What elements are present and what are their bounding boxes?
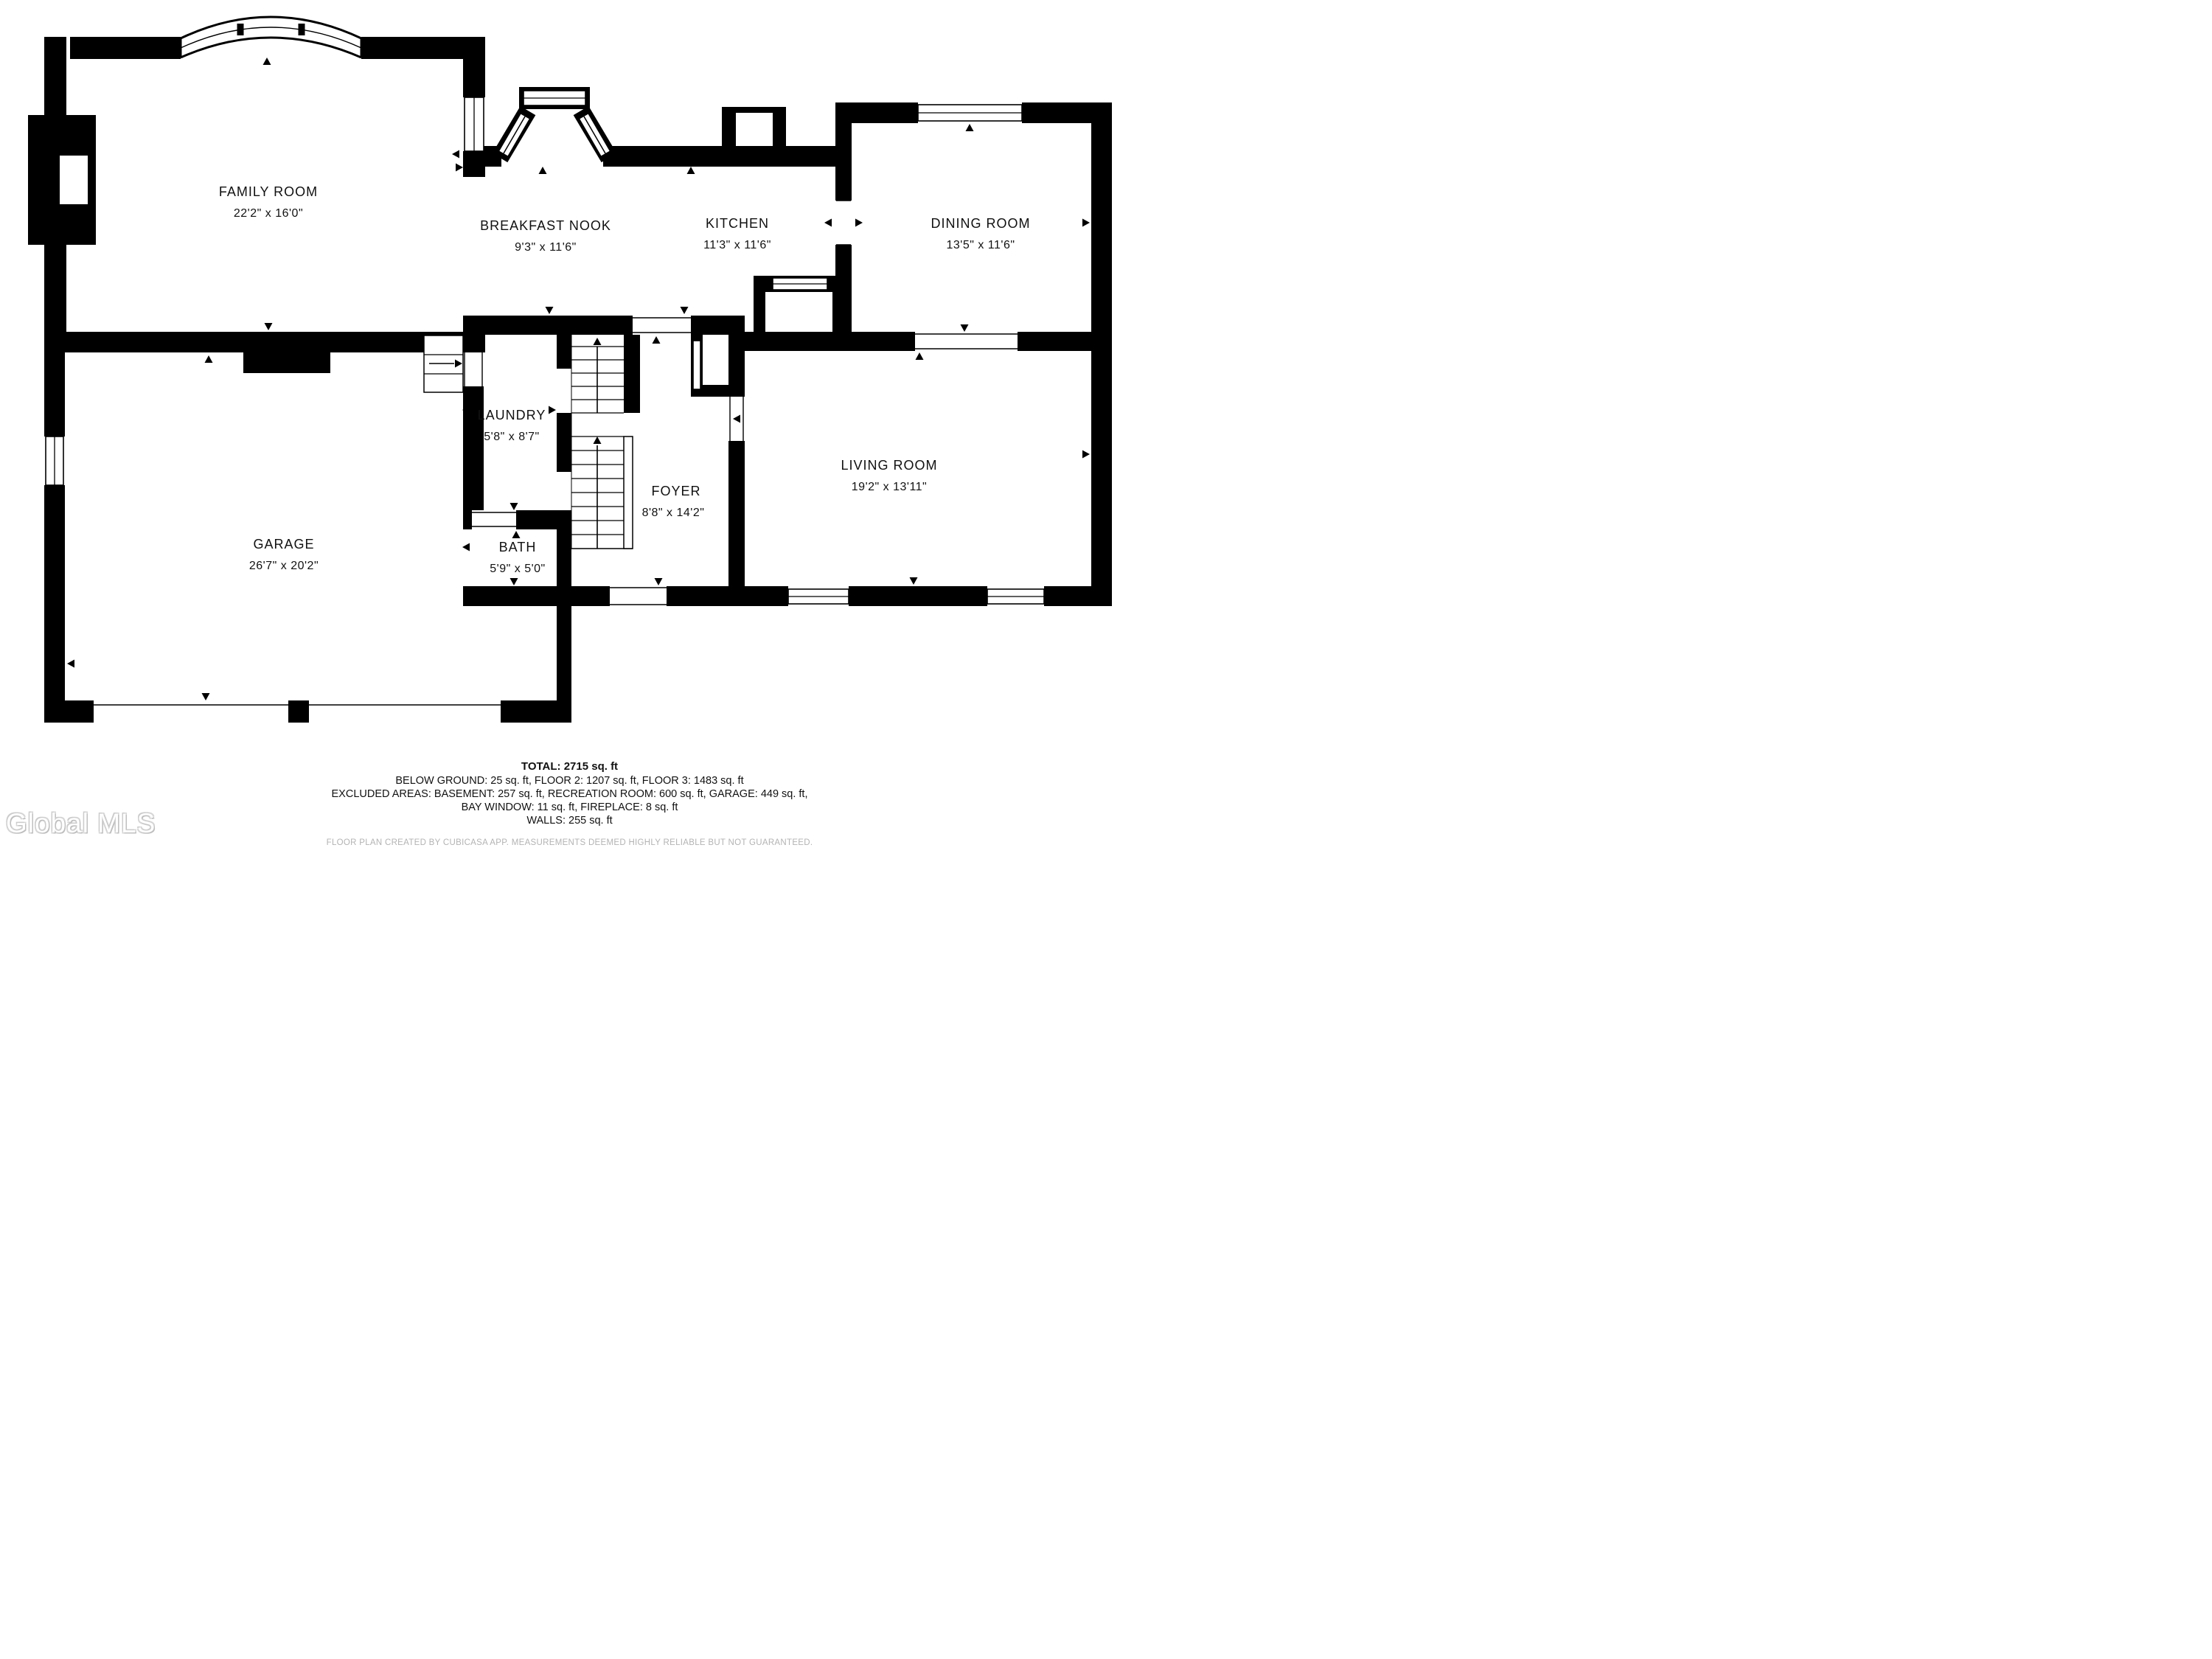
disclaimer-text: FLOOR PLAN CREATED BY CUBICASA APP. MEAS… <box>0 838 1139 847</box>
room-label-family-room: FAMILY ROOM <box>219 184 318 199</box>
total-area-text: TOTAL: 2715 sq. ft <box>0 760 1139 773</box>
room-label-kitchen: KITCHEN <box>706 216 769 231</box>
room-label-living-room: LIVING ROOM <box>841 458 937 473</box>
room-dims-foyer: 8'8" x 14'2" <box>642 507 705 519</box>
room-dims-laundry: 5'8" x 8'7" <box>484 431 539 443</box>
walls <box>28 37 1112 723</box>
room-label-bath: BATH <box>499 540 537 554</box>
room-label-dining-room: DINING ROOM <box>931 216 1031 231</box>
room-label-garage: GARAGE <box>253 537 314 552</box>
global-mls-watermark: Global MLS <box>6 808 156 839</box>
room-dims-dining-room: 13'5" x 11'6" <box>946 239 1015 251</box>
room-dims-family-room: 22'2" x 16'0" <box>234 207 303 220</box>
room-dims-bath: 5'9" x 5'0" <box>490 563 545 575</box>
room-dims-breakfast-nook: 9'3" x 11'6" <box>515 241 577 254</box>
room-dims-garage: 26'7" x 20'2" <box>249 560 319 572</box>
room-label-laundry: LAUNDRY <box>478 408 546 422</box>
excluded-areas-text: EXCLUDED AREAS: BASEMENT: 257 sq. ft, RE… <box>0 787 1139 801</box>
breakfast-nook-bay-window <box>500 111 609 158</box>
fireplace <box>35 122 88 237</box>
floors-area-text: BELOW GROUND: 25 sq. ft, FLOOR 2: 1207 s… <box>0 774 1139 787</box>
bay-fireplace-area-text: BAY WINDOW: 11 sq. ft, FIREPLACE: 8 sq. … <box>0 801 1139 814</box>
staircase <box>571 335 633 549</box>
bay-window-arch <box>181 17 361 58</box>
room-label-breakfast-nook: BREAKFAST NOOK <box>480 218 611 233</box>
walls-area-text: WALLS: 255 sq. ft <box>0 814 1139 827</box>
room-dims-living-room: 19'2" x 13'11" <box>852 481 927 493</box>
room-dims-kitchen: 11'3" x 11'6" <box>703 239 771 251</box>
room-label-foyer: FOYER <box>651 484 700 498</box>
floor-plan-page: FAMILY ROOM 22'2" x 16'0" BREAKFAST NOOK… <box>0 0 1139 855</box>
opening-lines <box>94 201 1018 705</box>
floor-plan-drawing: FAMILY ROOM 22'2" x 16'0" BREAKFAST NOOK… <box>0 0 1139 759</box>
